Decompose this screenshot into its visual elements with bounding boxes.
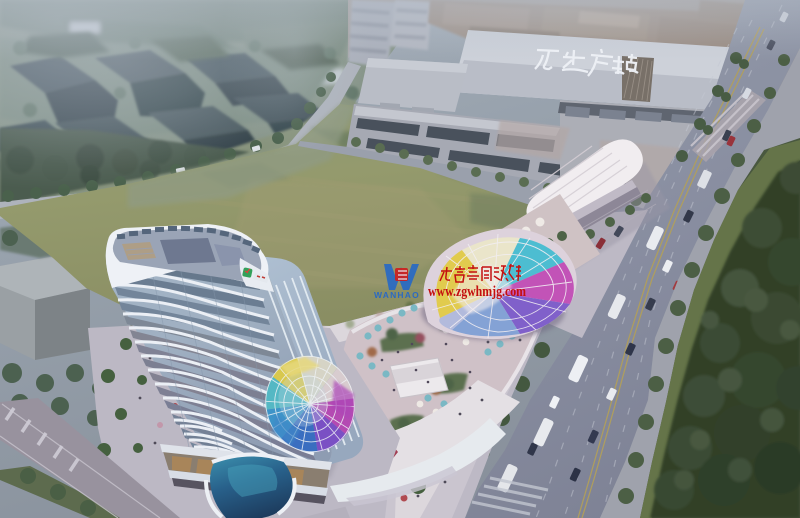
svg-text:www.zgwhmjg.com: www.zgwhmjg.com [428,284,526,300]
svg-text:WANHAO: WANHAO [374,290,420,300]
